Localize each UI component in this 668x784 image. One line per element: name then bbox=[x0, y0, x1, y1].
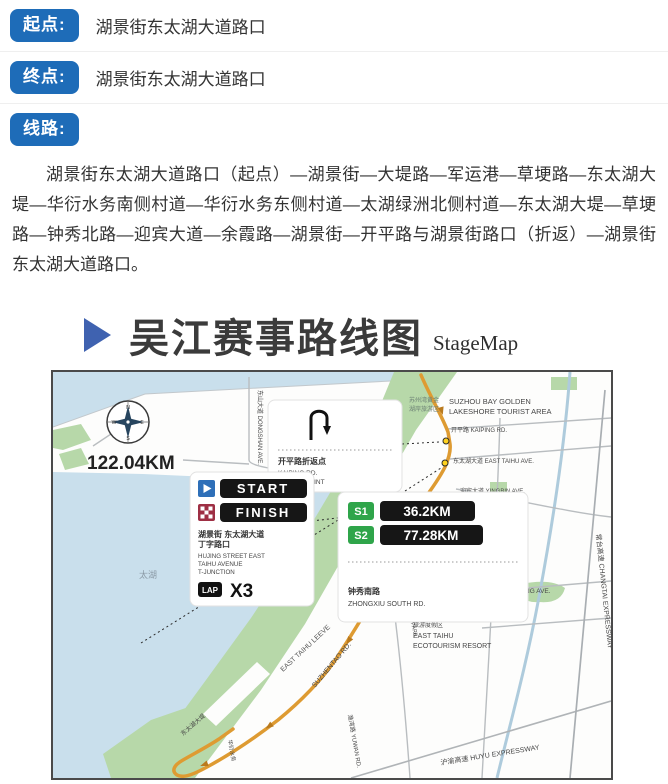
stage2-distance: 77.28KM bbox=[404, 528, 459, 543]
route-description: 湖景街东太湖大道路口（起点）—湖景街—大堤路—军运港—草埂路—东太湖大堤—华衍水… bbox=[12, 160, 656, 280]
stage-card-zh: 钟秀南路 bbox=[348, 586, 381, 596]
compass-w: W bbox=[112, 420, 117, 426]
end-point-value: 湖景街东太湖大道路口 bbox=[96, 65, 266, 90]
title-arrow-icon bbox=[84, 318, 111, 352]
map-title-en: StageMap bbox=[433, 331, 518, 356]
start-point-row: 起点: 湖景街东太湖大道路口 bbox=[0, 0, 668, 52]
label-east-taihu-ave: 东太湖大道 EAST TAIHU AVE. bbox=[453, 457, 534, 465]
route-info-panel: 起点: 湖景街东太湖大道路口 终点: 湖景街东太湖大道路口 线路: 湖景街东太湖… bbox=[0, 0, 668, 280]
end-point-row: 终点: 湖景街东太湖大道路口 bbox=[0, 52, 668, 104]
stage-map: N E S W 122.04KM 太湖 苏州湾黄金 湖岸旅游区 SUZHOU B… bbox=[51, 370, 613, 780]
start-finish-card: START FINISH 湖景街 东太湖大道 丁字路口 HUJING STREE… bbox=[190, 472, 314, 606]
start-card-en2: TAIHU AVENUE bbox=[198, 561, 242, 568]
map-title-block: 吴江赛事路线图 StageMap bbox=[84, 306, 668, 364]
finish-badge: FINISH bbox=[236, 505, 291, 520]
compass-rose: N E S W bbox=[107, 401, 149, 443]
route-row: 线路: bbox=[0, 104, 668, 155]
stage1-badge: S1 bbox=[354, 506, 367, 518]
stage1-distance: 36.2KM bbox=[403, 504, 450, 519]
label-dongshan-ave: 东山大道 DONGSHAN AVE. bbox=[256, 390, 264, 465]
stage-distance-card: S1 36.2KM S2 77.28KM 钟秀南路 ZHONGXIU SOUTH… bbox=[338, 492, 528, 622]
label-kaiping-rd: 开平路 KAIPING RD. bbox=[451, 426, 507, 434]
total-distance-label: 122.04KM bbox=[87, 453, 175, 474]
start-point-value: 湖景街东太湖大道路口 bbox=[96, 13, 266, 38]
label-resort-en2: ECOTOURISM RESORT bbox=[413, 643, 492, 650]
stage-card-en: ZHONGXIU SOUTH RD. bbox=[348, 601, 425, 608]
stage-map-svg: N E S W 122.04KM 太湖 苏州湾黄金 湖岸旅游区 SUZHOU B… bbox=[53, 372, 611, 778]
start-card-en3: T-JUNCTION bbox=[198, 569, 235, 576]
route-badge: 线路: bbox=[10, 113, 79, 146]
lap-count: X3 bbox=[230, 581, 253, 602]
map-title-zh: 吴江赛事路线图 bbox=[129, 306, 423, 364]
start-card-zh1: 湖景街 东太湖大道 bbox=[198, 529, 264, 539]
start-card-zh2: 丁字路口 bbox=[198, 539, 230, 549]
uturn-card-zh: 开平路折返点 bbox=[278, 456, 326, 466]
start-point-badge: 起点: bbox=[10, 9, 79, 42]
label-resort-en1: EAST TAIHU bbox=[413, 633, 453, 640]
lap-label: LAP bbox=[202, 586, 219, 595]
start-badge: START bbox=[237, 481, 289, 496]
label-tourist-area-en1: SUZHOU BAY GOLDEN bbox=[449, 397, 531, 406]
label-tourist-area-en2: LAKESHORE TOURIST AREA bbox=[449, 407, 552, 416]
label-tourist-area-zh2: 湖岸旅游区 bbox=[409, 405, 439, 413]
lake-label: 太湖 bbox=[139, 569, 157, 580]
start-card-en1: HUJING STREET EAST bbox=[198, 553, 265, 560]
label-tourist-area-zh1: 苏州湾黄金 bbox=[409, 396, 439, 404]
stage2-badge: S2 bbox=[354, 530, 367, 542]
compass-n: N bbox=[126, 405, 130, 411]
end-point-badge: 终点: bbox=[10, 61, 79, 94]
